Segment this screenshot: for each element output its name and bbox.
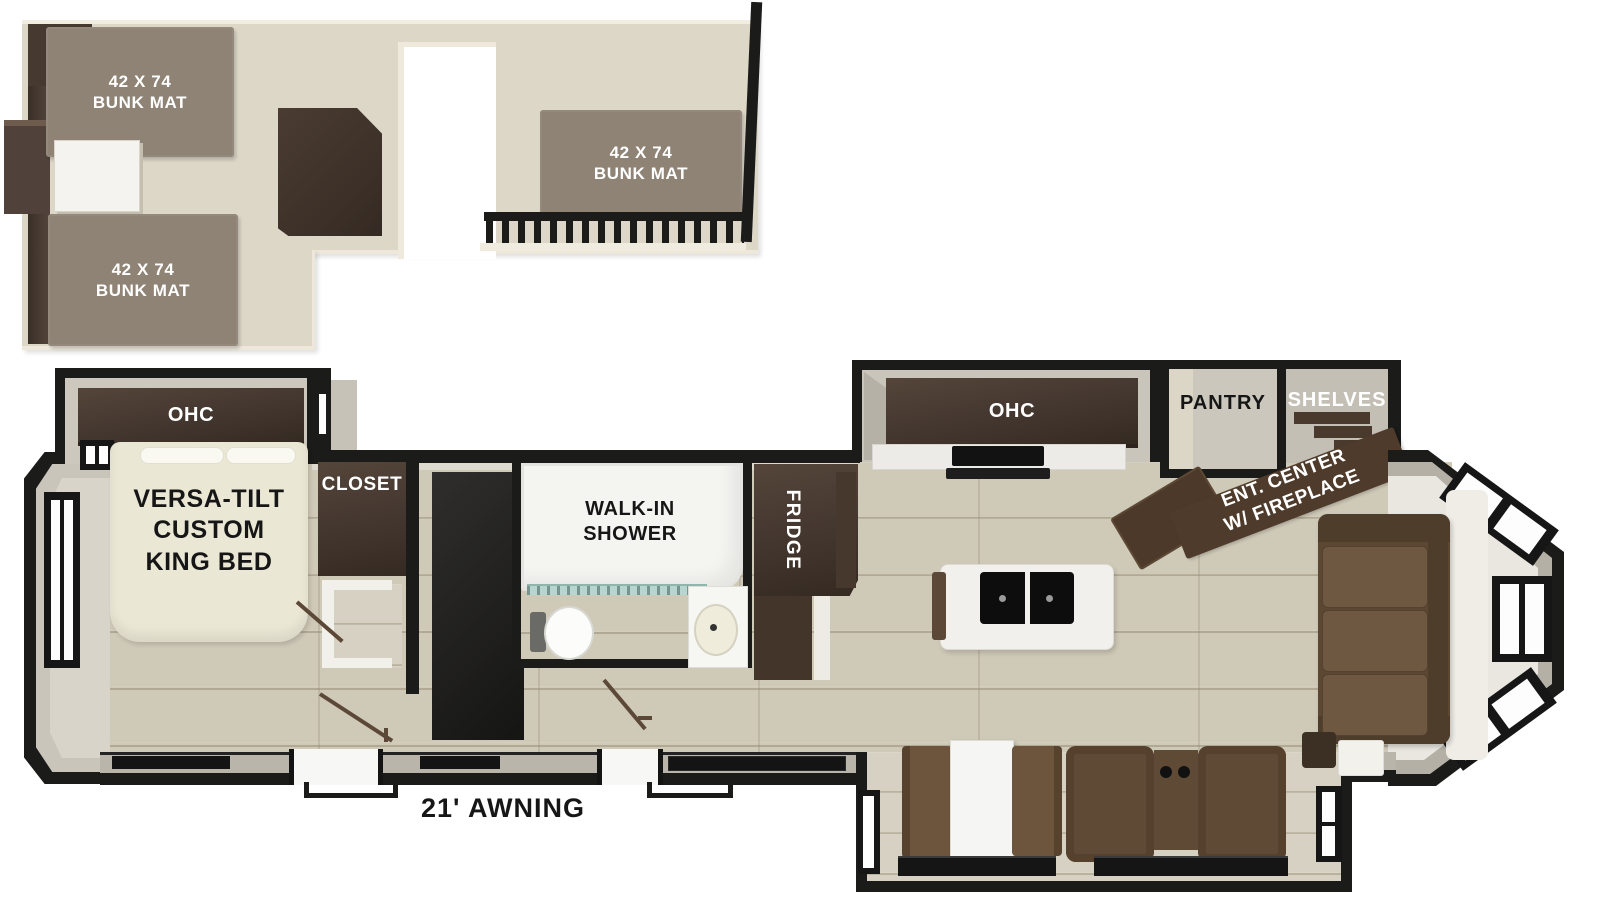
shower-glass bbox=[527, 584, 707, 595]
closet bbox=[318, 462, 406, 576]
theater-seat-left bbox=[1066, 746, 1154, 862]
king-bed bbox=[110, 442, 308, 642]
loft-railing-rail bbox=[484, 212, 746, 221]
entry-step-bracket-1 bbox=[304, 782, 398, 798]
shelf-step-1 bbox=[1294, 412, 1370, 424]
walk-in-shower bbox=[521, 463, 743, 591]
bath-sink bbox=[694, 604, 738, 656]
bathroom-door-handle bbox=[638, 716, 652, 720]
toilet-bowl bbox=[544, 606, 594, 660]
bunk-mat-2 bbox=[48, 214, 238, 346]
kitchen-overhead-cabinet bbox=[886, 378, 1138, 448]
sofa-cushion-1 bbox=[1322, 546, 1428, 608]
slide-right-window bbox=[1316, 786, 1342, 862]
island-end-cap bbox=[932, 572, 946, 640]
stove bbox=[952, 446, 1044, 466]
loft-railing-balusters bbox=[486, 221, 744, 243]
bath-faucet bbox=[710, 624, 717, 631]
bedroom-front-window bbox=[44, 492, 80, 668]
loft-stair-opening bbox=[398, 42, 496, 259]
closet-alcove-trim-bottom bbox=[322, 658, 392, 668]
closet-alcove bbox=[322, 584, 402, 668]
pantry-floor bbox=[1169, 369, 1193, 469]
sofa-backrest bbox=[1428, 520, 1448, 738]
dinette-bench-left bbox=[902, 746, 952, 858]
cup-holder-1 bbox=[1160, 766, 1172, 778]
bunk-mat-3 bbox=[540, 110, 742, 216]
loft-dresser bbox=[278, 108, 382, 236]
bed-pillow-left bbox=[140, 447, 224, 464]
entry-door-bedroom bbox=[289, 749, 383, 785]
theater-console bbox=[1154, 750, 1198, 850]
kitchen-corner-cabinet bbox=[836, 472, 856, 588]
loft-left-step-block bbox=[4, 120, 50, 214]
closet-alcove-trim-top bbox=[322, 580, 392, 590]
fridge-lower-cabinet bbox=[754, 596, 812, 680]
cup-holder-2 bbox=[1178, 766, 1190, 778]
sofa-cushion-3 bbox=[1322, 674, 1428, 736]
bottom-wall-window-1 bbox=[112, 756, 230, 769]
shelf-step-2 bbox=[1314, 426, 1372, 438]
sofa-cushion-2 bbox=[1322, 610, 1428, 672]
sofa-ottoman bbox=[1302, 732, 1336, 768]
bedroom-hall-wall bbox=[406, 462, 419, 694]
slide-bottom-window-2 bbox=[1094, 856, 1288, 876]
bed-pillow-right bbox=[226, 447, 296, 464]
sofa-side-table bbox=[1338, 740, 1384, 776]
bunk-mat-1 bbox=[46, 27, 234, 157]
bedroom-slide-right-window bbox=[319, 394, 326, 434]
bay-window-center bbox=[1492, 576, 1552, 662]
range-front bbox=[946, 468, 1050, 479]
loft-railing-ledge bbox=[480, 243, 746, 251]
awning-label: 21' AWNING bbox=[398, 790, 608, 828]
slide-left-window bbox=[858, 790, 880, 874]
entry-step-bracket-2 bbox=[647, 782, 733, 798]
bedroom-slide-window bbox=[80, 440, 114, 470]
sofa-back-counter bbox=[1446, 490, 1488, 760]
bottom-wall-window-2 bbox=[668, 756, 846, 771]
bottom-wall-mat bbox=[420, 756, 500, 769]
fridge-side-panel bbox=[814, 596, 830, 680]
theater-seat-right bbox=[1198, 746, 1286, 862]
dinette-bench-right bbox=[1012, 746, 1062, 856]
bedroom-overhead-cabinet bbox=[78, 388, 304, 446]
bedroom-door-handle bbox=[384, 728, 388, 742]
rv-floorplan-canvas: 42 X 74 BUNK MAT 42 X 74 BUNK MAT 42 X 7… bbox=[0, 0, 1600, 900]
dinette-table bbox=[950, 740, 1014, 866]
slide-bottom-window-1 bbox=[898, 856, 1056, 876]
island-double-sink bbox=[980, 572, 1074, 624]
entry-door-main bbox=[597, 749, 663, 785]
hall-wardrobe bbox=[432, 472, 524, 740]
loft-nightstand bbox=[54, 140, 140, 212]
